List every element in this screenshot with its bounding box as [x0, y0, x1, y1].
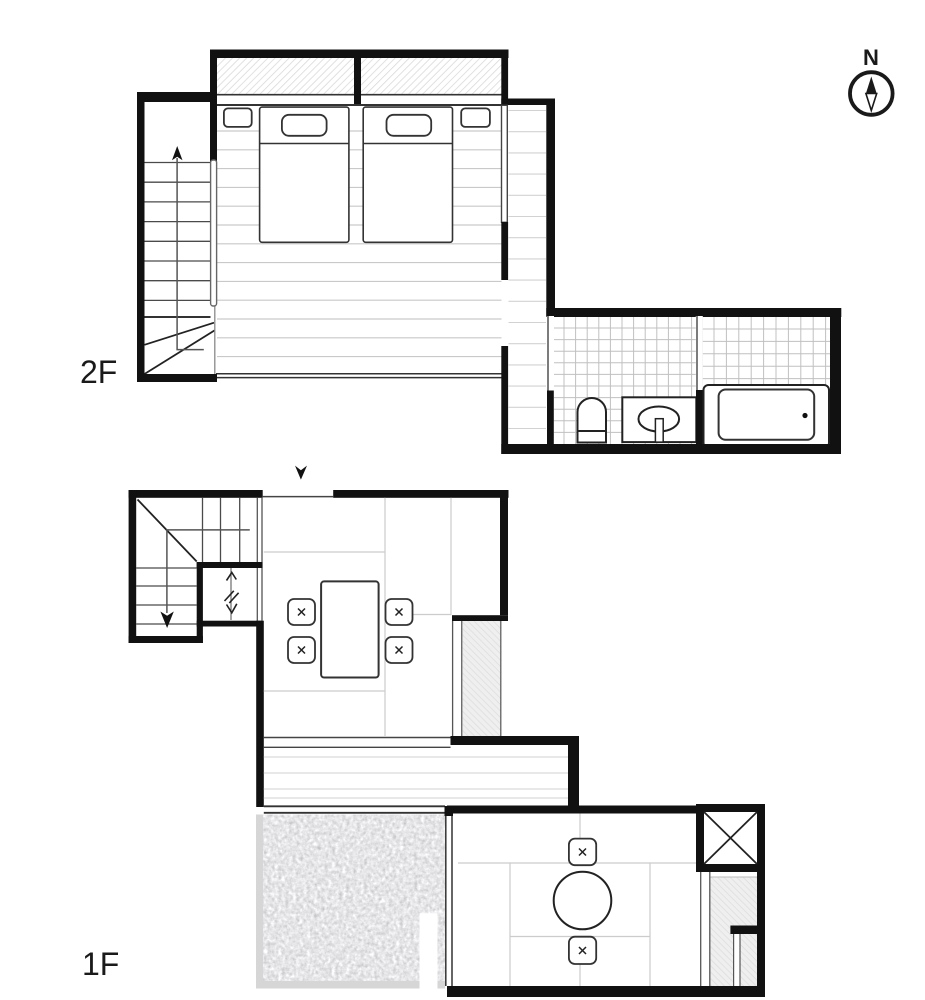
svg-text:1F: 1F	[82, 946, 119, 982]
svg-text:N: N	[863, 45, 879, 70]
svg-text:2F: 2F	[80, 354, 117, 390]
